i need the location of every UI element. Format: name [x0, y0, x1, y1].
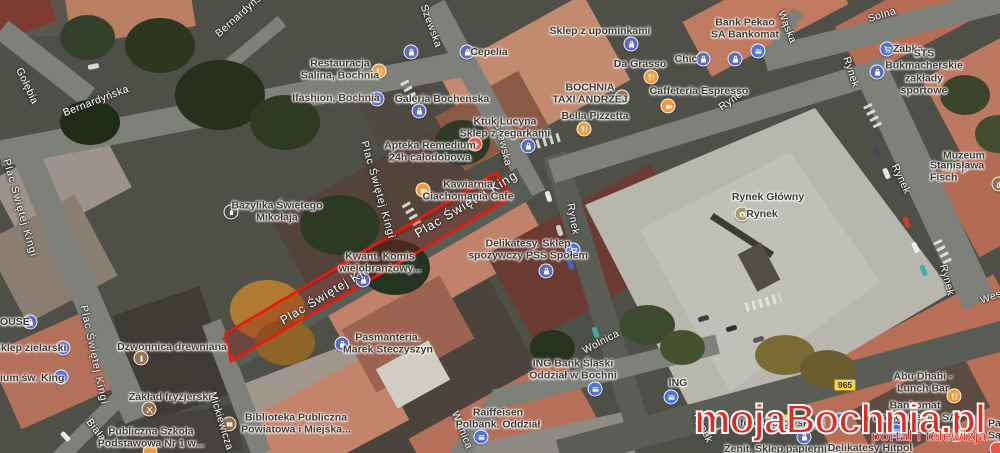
atm-icon[interactable]	[751, 44, 766, 59]
poi-label[interactable]: Stanisława Fisch	[930, 160, 1000, 185]
poi-label[interactable]: Abu Dhabi - Lunch Bar	[885, 371, 962, 396]
car	[911, 241, 920, 253]
poi-label[interactable]: Chic	[675, 53, 698, 65]
map-canvas[interactable]: GołębiaBernardyńskaBernardyńskaSzewskaSz…	[0, 0, 1000, 453]
shopping-bag-icon[interactable]	[521, 139, 536, 154]
poi-label[interactable]: ING	[669, 377, 688, 389]
poi-label[interactable]: Bank Pekao SA Bankomat	[711, 17, 779, 42]
car	[902, 216, 911, 228]
atm-icon[interactable]	[588, 382, 603, 397]
crosswalk	[744, 293, 781, 312]
atm-icon[interactable]	[474, 430, 489, 445]
poi-label[interactable]: Da Grasso	[614, 58, 667, 70]
poi-label[interactable]: Delikatesy. Sklep spożywczy PSS Społem	[468, 238, 588, 263]
tree	[125, 18, 195, 73]
poi-label[interactable]: Rynek	[746, 208, 778, 220]
poi-label[interactable]: Ktuk Lucyna Sklep z zegarkami	[460, 116, 550, 141]
poi-label[interactable]: Publiczna Szkoła Podstawowa Nr 1 w...	[98, 426, 204, 451]
poi-label[interactable]: Rynek Główny	[732, 191, 804, 203]
poi-label[interactable]: Kawiarnia Ciachomania Cafe	[422, 179, 513, 204]
car	[873, 146, 882, 158]
road-shield: 965	[834, 379, 856, 391]
poi-label[interactable]: Zakład fryzjerski	[129, 391, 211, 403]
poi-label[interactable]: Delikatesy Hitpol	[828, 442, 913, 453]
poi-dot-icon[interactable]	[990, 442, 1000, 453]
shopping-bag-icon[interactable]	[624, 37, 639, 52]
poi-label[interactable]: Cepelia	[470, 46, 507, 58]
car	[726, 325, 738, 333]
poi-label[interactable]: Galeria Bocheńska	[395, 93, 490, 105]
car	[88, 63, 100, 70]
shopping-bag-icon[interactable]	[412, 104, 427, 119]
poi-label[interactable]: Pa Są	[988, 418, 1000, 443]
poi-label[interactable]: Pasmanteria. Marek Steczyszyn	[343, 332, 433, 357]
poi-label[interactable]: Raiffeisen Polbank. Oddział	[456, 407, 541, 432]
shopping-bag-icon[interactable]	[539, 264, 554, 279]
poi-label[interactable]: Sklep z upominkami	[550, 25, 651, 37]
poi-label[interactable]: Bazylika Świętego Mikołaja	[231, 200, 322, 225]
poi-label[interactable]: Ifashion, Bochnia	[292, 92, 380, 104]
hairdresser-icon[interactable]	[142, 402, 157, 417]
poi-label[interactable]: Biblioteka Publiczna Powiatowa i Miejska…	[241, 412, 351, 437]
tree	[660, 330, 705, 365]
poi-label[interactable]: Sklep zielarski	[0, 342, 66, 354]
poi-label[interactable]: STS Bukmacherskie zakłady sportowe	[885, 47, 963, 97]
shopping-bag-icon[interactable]	[404, 45, 419, 60]
car	[919, 264, 928, 276]
poi-label[interactable]: Caffeteria Espresso	[650, 85, 749, 97]
poi-label[interactable]: BOCHNIA TAXI ANDRZEJ	[552, 82, 627, 107]
car	[544, 190, 552, 202]
poi-label[interactable]: Bella Pizzetta	[561, 110, 628, 122]
poi-label[interactable]: Zenit. Sklep papierniczy	[724, 443, 844, 453]
poi-label[interactable]: Dzwonnica drewniana	[117, 341, 227, 353]
tree	[60, 15, 115, 60]
monument-statue	[738, 242, 781, 291]
street-label: Gołębia	[13, 66, 40, 106]
restaurant-icon[interactable]	[577, 122, 592, 137]
atm-icon[interactable]	[664, 390, 679, 405]
poi-label[interactable]: ING Bank Śląski Oddział w Bochni	[529, 358, 617, 383]
poi-label[interactable]: Bankomat Banku Pekao SA	[873, 400, 956, 425]
bar-icon[interactable]	[833, 413, 848, 428]
poi-label[interactable]: Kwant. Komis wielobranżowy...	[339, 251, 422, 276]
shopping-bag-icon[interactable]	[696, 52, 711, 67]
shopping-bag-icon[interactable]	[728, 52, 743, 67]
cafe-icon[interactable]	[661, 99, 676, 114]
poi-label[interactable]: Restauracja Salina, Bochnia	[301, 58, 379, 83]
shopping-bag-icon[interactable]	[870, 65, 885, 80]
restaurant-icon[interactable]	[644, 70, 659, 85]
poi-label[interactable]: Apteka Remedium 24h całodobowa	[384, 140, 476, 165]
car	[698, 315, 710, 323]
poi-label[interactable]: OUSE	[0, 316, 30, 328]
atm-icon[interactable]	[889, 424, 904, 439]
poi-label[interactable]: ium św. King	[0, 372, 64, 384]
poi-label[interactable]: fotodabrowski.pl	[740, 417, 824, 429]
